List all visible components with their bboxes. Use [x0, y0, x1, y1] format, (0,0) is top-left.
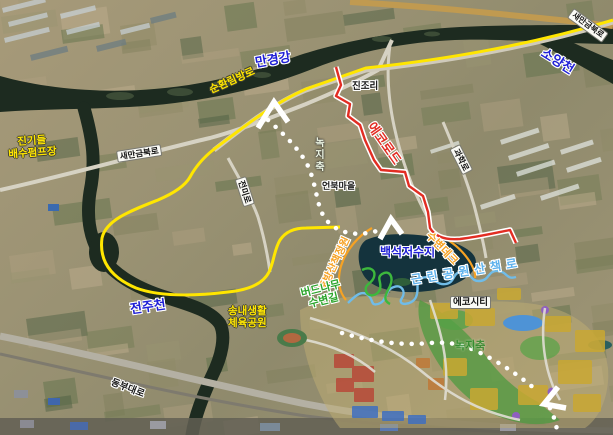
map-graphics	[0, 0, 613, 435]
reservoir-island	[393, 278, 411, 286]
pump-station-building	[48, 204, 59, 211]
sports-park	[277, 329, 307, 347]
satellite-map: 만경강 소양천 새만금북로 순환림방로 진기들 배수펌프장 새만금북로 전미로 …	[0, 0, 613, 435]
